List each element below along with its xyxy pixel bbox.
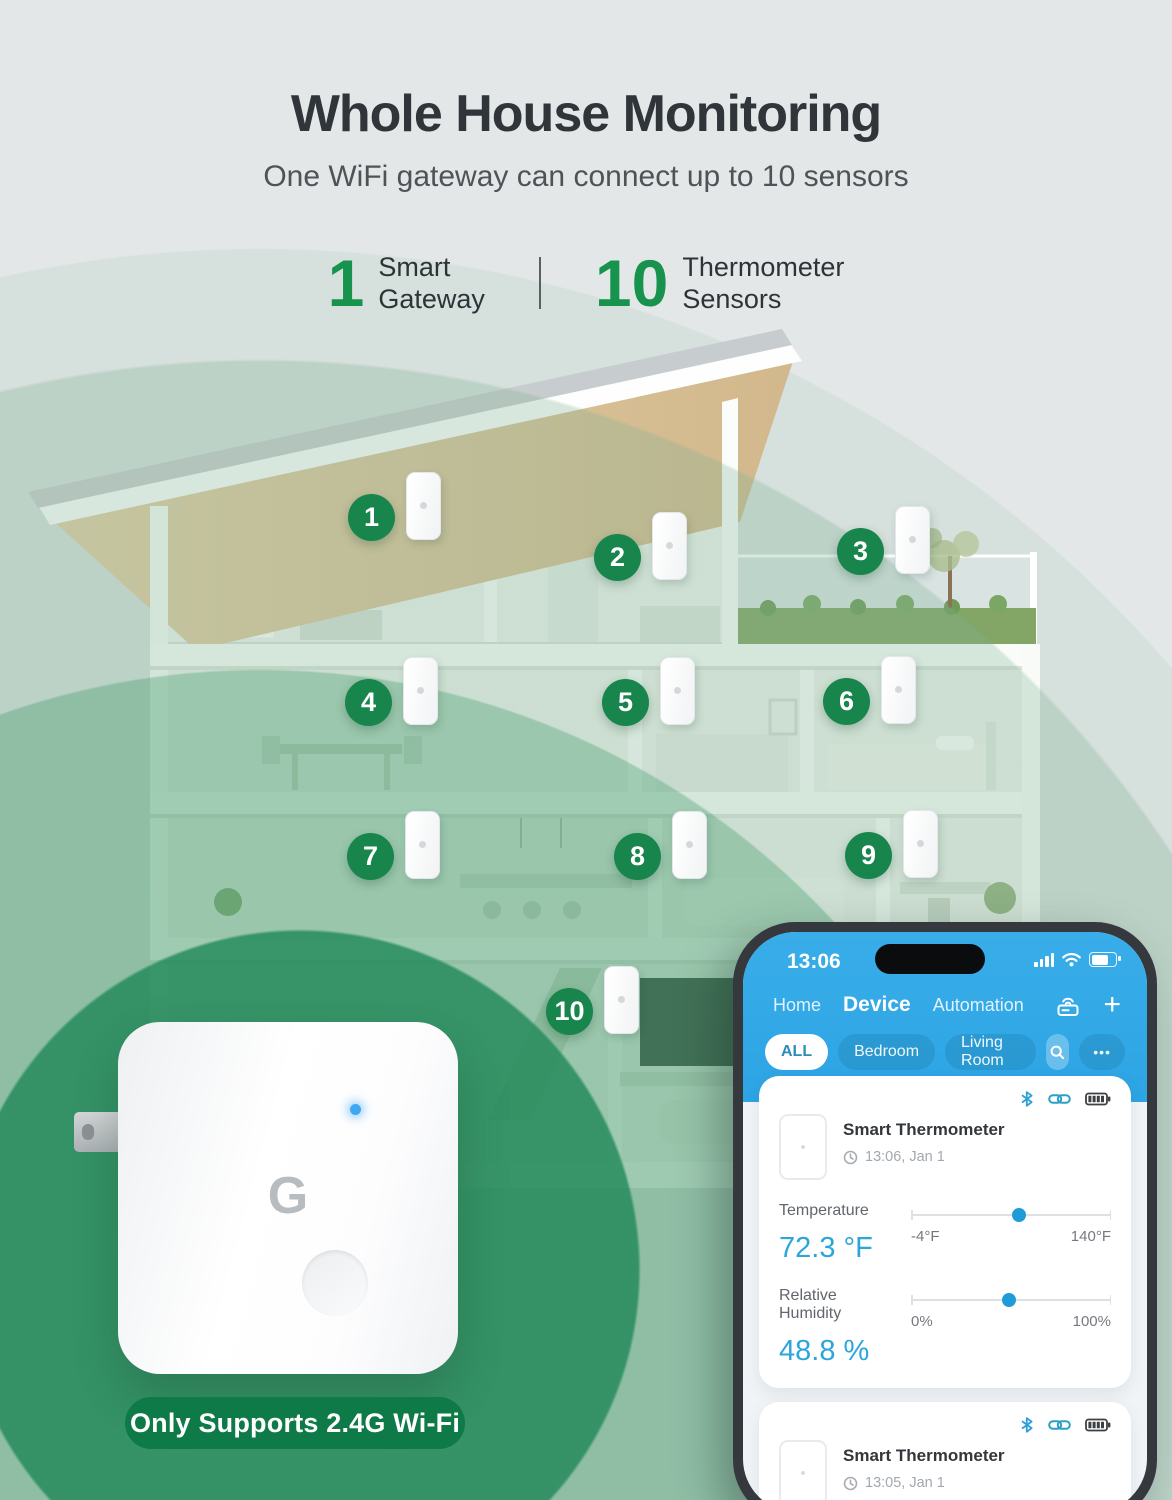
temperature-slider: -4°F 140°F [911, 1202, 1111, 1265]
card-status-icons [779, 1088, 1111, 1110]
range-min: -4°F [911, 1228, 940, 1245]
sensor-marker-9: 9 [845, 832, 975, 932]
humidity-metric: Relative Humidity 48.8 % 0% 100% [779, 1287, 1111, 1368]
thermometer-sensor [895, 506, 930, 574]
device-name: Smart Thermometer [843, 1446, 1005, 1466]
marker-badge: 2 [594, 534, 641, 581]
marker-badge: 10 [546, 988, 593, 1035]
marker-badge: 3 [837, 528, 884, 575]
gateway-button[interactable] [302, 1250, 368, 1316]
temperature-metric: Temperature 72.3 °F -4°F 140°F [779, 1202, 1111, 1265]
cellular-signal-icon [1034, 953, 1054, 967]
link-icon [1048, 1418, 1071, 1432]
sensor-marker-5: 5 [602, 679, 732, 779]
slider-dot [1012, 1208, 1026, 1222]
page: Whole House Monitoring One WiFi gateway … [0, 0, 1172, 1500]
device-thumbnail [779, 1114, 827, 1180]
thermometer-sensor [672, 811, 707, 879]
phone-screen: 13:06 Home Device Automatio [743, 932, 1147, 1500]
plug-prong [74, 1112, 122, 1152]
chip-living-room[interactable]: Living Room [945, 1034, 1036, 1070]
tab-device[interactable]: Device [843, 993, 911, 1017]
tab-home[interactable]: Home [773, 995, 821, 1016]
marker-badge: 4 [345, 679, 392, 726]
thermometer-sensor [405, 811, 440, 879]
dynamic-island [875, 944, 985, 974]
marker-badge: 8 [614, 833, 661, 880]
link-icon [1048, 1092, 1071, 1106]
metric-label: Relative Humidity [779, 1287, 903, 1323]
device-info-row: Smart Thermometer 13:06, Jan 1 [779, 1114, 1111, 1180]
bluetooth-icon [1020, 1417, 1034, 1433]
device-card[interactable]: Smart Thermometer 13:06, Jan 1 [759, 1076, 1131, 1388]
app-nav: Home Device Automation + [773, 990, 1121, 1020]
marker-badge: 6 [823, 678, 870, 725]
tab-automation[interactable]: Automation [933, 995, 1024, 1016]
thermometer-sensor [660, 657, 695, 725]
chip-bedroom[interactable]: Bedroom [838, 1034, 935, 1070]
range-max: 140°F [1071, 1228, 1111, 1245]
gateway-body: G [118, 1022, 458, 1374]
sensor-marker-6: 6 [823, 678, 953, 778]
sensor-marker-8: 8 [614, 833, 744, 933]
range-max: 100% [1073, 1313, 1111, 1330]
device-name: Smart Thermometer [843, 1120, 1005, 1140]
more-filters-button[interactable]: ••• [1079, 1034, 1125, 1070]
slider-dot [1002, 1293, 1016, 1307]
gateway-icon[interactable] [1053, 991, 1083, 1019]
status-icons [1034, 952, 1117, 967]
sensor-marker-7: 7 [347, 833, 477, 933]
status-led [350, 1104, 361, 1115]
temperature-value: 72.3 °F [779, 1232, 903, 1265]
clock-icon [843, 1476, 858, 1491]
slider-track [911, 1214, 1111, 1216]
humidity-value: 48.8 % [779, 1335, 903, 1368]
marker-badge: 5 [602, 679, 649, 726]
thermometer-sensor [406, 472, 441, 540]
smartphone: 13:06 Home Device Automatio [733, 922, 1157, 1500]
marker-badge: 1 [348, 494, 395, 541]
brand-logo: G [118, 1166, 458, 1226]
sensor-marker-10: 10 [546, 988, 676, 1088]
bluetooth-icon [1020, 1091, 1034, 1107]
card-status-icons [779, 1414, 1111, 1436]
sensor-marker-4: 4 [345, 679, 475, 779]
thermometer-sensor [903, 810, 938, 878]
wifi-icon [1061, 952, 1082, 967]
device-timestamp: 13:06, Jan 1 [843, 1149, 1005, 1165]
thermometer-sensor [604, 966, 639, 1034]
thermometer-sensor [403, 657, 438, 725]
battery-icon [1089, 952, 1117, 967]
search-icon [1049, 1044, 1066, 1061]
marker-badge: 9 [845, 832, 892, 879]
wifi-support-badge: Only Supports 2.4G Wi-Fi [125, 1397, 465, 1449]
sensor-battery-icon [1085, 1092, 1111, 1106]
chip-all[interactable]: ALL [765, 1034, 828, 1070]
sensor-battery-icon [1085, 1418, 1111, 1432]
range-min: 0% [911, 1313, 933, 1330]
marker-badge: 7 [347, 833, 394, 880]
clock-icon [843, 1150, 858, 1165]
thermometer-sensor [652, 512, 687, 580]
device-card[interactable]: Smart Thermometer 13:05, Jan 1 [759, 1402, 1131, 1500]
device-timestamp: 13:05, Jan 1 [843, 1475, 1005, 1491]
device-cards: Smart Thermometer 13:06, Jan 1 [759, 1076, 1131, 1500]
device-info-row: Smart Thermometer 13:05, Jan 1 [779, 1440, 1111, 1500]
sensor-marker-1: 1 [348, 494, 478, 594]
filter-chips: ALL Bedroom Living Room ••• [765, 1034, 1125, 1070]
search-button[interactable] [1046, 1034, 1070, 1070]
slider-track [911, 1299, 1111, 1301]
humidity-slider: 0% 100% [911, 1287, 1111, 1368]
thermometer-sensor [881, 656, 916, 724]
device-thumbnail [779, 1440, 827, 1500]
sensor-marker-3: 3 [837, 528, 967, 628]
sensor-marker-2: 2 [594, 534, 724, 634]
add-device-button[interactable]: + [1103, 990, 1121, 1020]
status-bar: 13:06 [743, 942, 1147, 982]
status-time: 13:06 [787, 950, 841, 974]
metric-label: Temperature [779, 1202, 903, 1220]
